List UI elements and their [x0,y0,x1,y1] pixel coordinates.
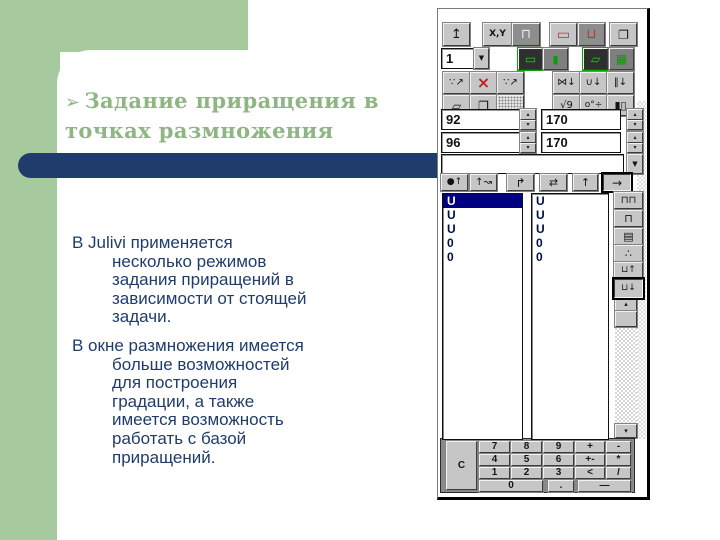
spin-up-button[interactable]: ▴ [520,132,536,143]
keypad-key-—[interactable]: — [578,480,631,492]
list-item[interactable]: 0 [443,250,522,264]
xy-mode-button[interactable]: X,Y [483,23,512,46]
db-save-button[interactable]: ⊔↑ [614,262,643,279]
sum-table-button[interactable]: ▤ [614,228,643,245]
list-item[interactable]: 0 [443,236,522,250]
spin-up-button[interactable]: ▴ [627,132,643,143]
green-grid-button[interactable]: ▦ [609,48,634,70]
body-line: зависимости от стоящей [112,290,307,309]
layer-count-dropdown-button[interactable]: ▼ [474,48,489,69]
keypad-key-C[interactable]: C [446,441,477,490]
increment-field-1-spinner: ▴▾ [520,109,536,130]
spin-up-button[interactable]: ▴ [520,109,536,120]
delete-spread-button[interactable]: × [470,72,497,94]
increment-field-3[interactable]: 96 [441,132,520,153]
spin-down-button[interactable]: ▾ [520,143,536,154]
body-line: В окне размножения имеется [72,337,307,356]
green-left-band [0,0,60,540]
keypad-key-5[interactable]: 5 [511,454,542,466]
increments-panel: 1 ▼ ▼ ▴ ▾ ↥X,Y⊓▭⊔❐▭▮▱▦∵↗×∵↗⋈↓∪↓‖↓▱❐√9o°÷… [437,8,650,500]
body-line: задания приращений в [112,271,307,290]
list-item[interactable]: U [532,222,608,236]
zigzag-arrow-button[interactable]: ↑↝ [470,174,497,191]
spread-points-alt-button[interactable]: ∵↗ [497,72,524,94]
arrow-bullet-icon: ➢ [65,92,80,113]
scrollbar-down-button[interactable]: ▾ [615,424,637,438]
list-item[interactable]: 0 [532,250,608,264]
keypad-key-/[interactable]: / [606,467,631,479]
body-text: В Julivi применяетсянесколько режимовзад… [72,234,307,477]
up-arrow-button[interactable]: ↑ [573,174,598,191]
copy-layers-button[interactable]: ❐ [610,23,637,46]
keypad-key-1[interactable]: 1 [479,467,510,479]
keypad-key-<[interactable]: < [575,467,605,479]
paste-up-button[interactable]: ↥ [443,23,470,46]
list-item[interactable]: U [532,208,608,222]
green-rect-button[interactable]: ▭ [518,48,543,70]
red-u-button[interactable]: ⊔ [578,23,605,46]
corner-arrow-button[interactable]: ↱ [507,174,534,191]
spin-down-button[interactable]: ▾ [627,143,643,154]
increment-field-4-spinner: ▴▾ [627,132,643,153]
spin-up-button[interactable]: ▴ [627,109,643,120]
accent-bar [18,153,437,178]
right-arrow-button[interactable]: → [603,174,631,191]
body-line: задачи. [112,308,307,327]
keypad-key-*[interactable]: * [606,454,631,466]
green-bar-button[interactable]: ▮ [543,48,568,70]
scrollbar-thumb[interactable] [615,311,637,327]
increments-list-1[interactable]: UUU00 [442,193,523,440]
increment-base-combobox[interactable] [441,154,624,174]
body-line: В Julivi применяется [72,234,307,253]
keypad-key-2[interactable]: 2 [511,467,542,479]
title-line-2: точках размножения [65,117,379,145]
keypad-key-0[interactable]: 0 [479,480,543,492]
tables-xy-button[interactable]: ⊓⊓ [614,192,643,209]
keypad-key-8[interactable]: 8 [511,441,542,453]
list-item[interactable]: U [443,208,522,222]
body-line: для построения [112,374,307,393]
body-line: работать с базой [112,430,307,449]
list-item[interactable]: 0 [532,236,608,250]
slide-title: ➢Задание приращения в точках размножения [65,87,379,145]
body-paragraph: В окне размножения имеетсябольше возможн… [72,337,307,467]
increment-field-2[interactable]: 170 [541,109,621,130]
spin-down-button[interactable]: ▾ [520,120,536,131]
body-line: имеется возможность [112,411,307,430]
parallel-pin-button[interactable]: ‖↓ [607,72,634,94]
keypad-key-+-[interactable]: +- [575,454,605,466]
keypad-key-6[interactable]: 6 [543,454,574,466]
increment-field-1[interactable]: 92 [441,109,520,130]
body-line: градации, а также [112,393,307,412]
table-xy-button[interactable]: ⊓ [614,210,643,227]
red-contour-button[interactable]: ▭ [550,23,577,46]
keypad-key-3[interactable]: 3 [543,467,574,479]
list-item[interactable]: U [532,194,608,208]
increment-field-4[interactable]: 170 [541,132,621,153]
keypad-key-+[interactable]: + [575,441,605,453]
spin-down-button[interactable]: ▾ [627,120,643,131]
green-draw-button[interactable]: ▱ [583,48,608,70]
title-line-1: ➢Задание приращения в [65,87,379,117]
point-up-arrow-button[interactable]: ●↑ [441,174,468,191]
title-line-1-text: Задание приращения в [84,88,378,113]
mirror-pin-button[interactable]: ⋈↓ [553,72,580,94]
keypad-key--[interactable]: - [606,441,631,453]
combobox-dropdown-button[interactable]: ▼ [627,154,643,174]
list-item[interactable]: U [443,194,522,208]
increment-field-3-spinner: ▴▾ [520,132,536,153]
layer-count-field[interactable]: 1 [441,48,474,69]
body-line: больше возможностей [112,356,307,375]
chevron-down-icon: ▼ [632,161,637,168]
scatter-points-button[interactable]: ∴ [614,245,643,262]
chevron-down-icon: ▼ [479,55,484,62]
db-open-button[interactable]: ⊔↓ [614,279,643,298]
keypad-key-7[interactable]: 7 [479,441,510,453]
increment-field-2-spinner: ▴▾ [627,109,643,130]
contour-mode-button[interactable]: ⊓ [512,23,540,46]
body-line: несколько режимов [112,253,307,272]
spread-points-button[interactable]: ∵↗ [443,72,470,94]
body-line: приращений. [112,449,307,468]
rotate-pin-button[interactable]: ∪↓ [580,72,607,94]
increments-list-2[interactable]: UUU00 [531,193,609,440]
scrollbar-up-button[interactable]: ▴ [615,298,637,311]
body-paragraph: В Julivi применяетсянесколько режимовзад… [72,234,307,327]
keypad-key-9[interactable]: 9 [543,441,574,453]
keypad-key-.[interactable]: . [548,480,574,492]
list-item[interactable]: U [443,222,522,236]
swap-arrow-button[interactable]: ⇄ [540,174,567,191]
keypad-key-4[interactable]: 4 [479,454,510,466]
